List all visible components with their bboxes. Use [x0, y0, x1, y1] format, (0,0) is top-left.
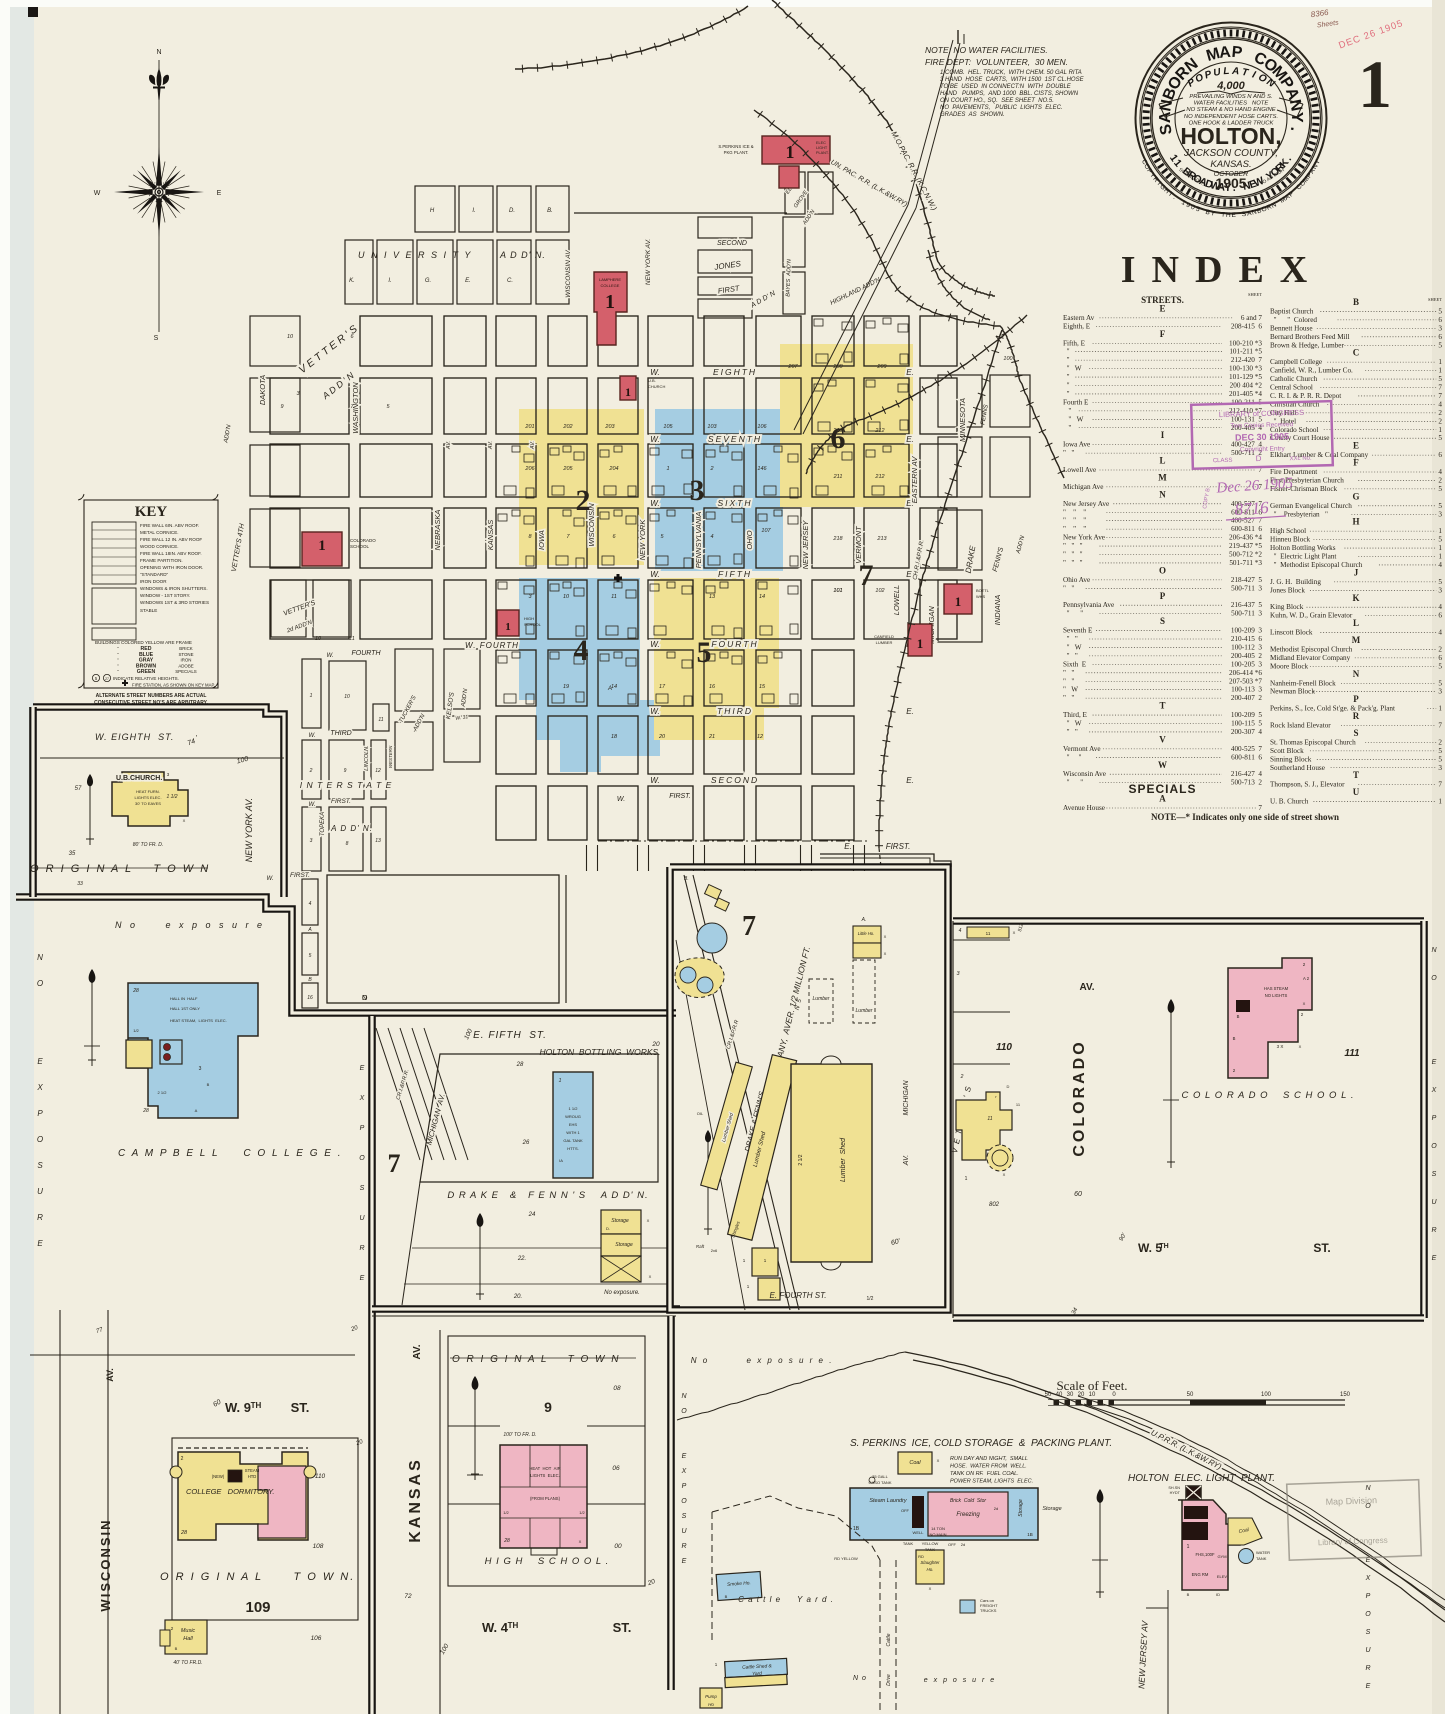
svg-text:N: N — [1159, 489, 1166, 499]
svg-text:5: 5 — [697, 636, 712, 669]
svg-text:COLORADO: COLORADO — [350, 538, 376, 543]
svg-text:Scale of Feet.: Scale of Feet. — [1056, 1378, 1127, 1393]
svg-text:GREEN: GREEN — [137, 669, 156, 675]
svg-text:212: 212 — [874, 428, 884, 434]
svg-text:57: 57 — [75, 786, 82, 792]
svg-text:218: 218 — [832, 536, 843, 542]
svg-text:8: 8 — [346, 841, 349, 847]
svg-text:FIRST.: FIRST. — [886, 842, 911, 851]
svg-text:R: R — [681, 1543, 686, 1550]
svg-text:RD: RD — [918, 1554, 924, 1559]
svg-text:WINDOWS 1ST & 3RD STORIES: WINDOWS 1ST & 3RD STORIES — [140, 600, 209, 605]
svg-text:150: 150 — [1340, 1392, 1351, 1398]
svg-text:6: 6 — [1438, 654, 1442, 662]
svg-text:INDEX: INDEX — [1121, 249, 1323, 291]
svg-text:5: 5 — [1438, 341, 1442, 349]
svg-text:MINNESOTA: MINNESOTA — [958, 398, 967, 442]
svg-text:" Electric Light Plant: " Electric Light Plant — [1270, 553, 1336, 561]
svg-text:A 2: A 2 — [1303, 976, 1310, 981]
svg-text:R: R — [1431, 1227, 1436, 1234]
svg-text:SCHOOL: SCHOOL — [350, 544, 370, 549]
svg-text:9: 9 — [344, 768, 347, 774]
svg-text:5: 5 — [1438, 536, 1442, 544]
svg-text:Catholic Church: Catholic Church — [1270, 375, 1318, 383]
svg-text:K: K — [1352, 593, 1359, 603]
svg-text:IOWA: IOWA — [537, 530, 546, 550]
svg-text:G: G — [1352, 491, 1359, 501]
svg-text:T: T — [1221, 212, 1226, 219]
svg-text:00: 00 — [614, 1543, 622, 1550]
svg-text:GYM: GYM — [1217, 1554, 1226, 1559]
svg-text:" W: " W — [1063, 643, 1082, 651]
svg-text:CANFIELD: CANFIELD — [874, 634, 894, 639]
svg-text:E: E — [1231, 212, 1236, 219]
svg-text:1 1/2: 1 1/2 — [166, 794, 177, 800]
svg-text:17: 17 — [659, 684, 666, 690]
svg-text:1 1/2: 1 1/2 — [569, 1106, 579, 1111]
svg-text:1: 1 — [625, 385, 631, 399]
svg-text:TANK: TANK — [903, 1541, 914, 1546]
svg-text:U. B. Church: U. B. Church — [1270, 798, 1309, 806]
svg-text:RUN DAY AND NIGHT, SMALL: RUN DAY AND NIGHT, SMALL — [950, 1456, 1028, 1462]
svg-text:O: O — [362, 995, 368, 1002]
svg-text:500-711 3: 500-711 3 — [1231, 610, 1262, 618]
svg-text:E: E — [682, 1453, 687, 1460]
svg-text:5: 5 — [1438, 755, 1442, 763]
svg-text:AV.: AV. — [530, 441, 536, 450]
svg-text:B: B — [725, 1594, 728, 1599]
svg-text:C. R. I. & P. R. R. Depot: C. R. I. & P. R. R. Depot — [1270, 392, 1341, 400]
svg-text:O: O — [359, 1155, 365, 1162]
svg-text:EHS: EHS — [569, 1122, 578, 1127]
svg-text:HYDT: HYDT — [1170, 1491, 1181, 1495]
svg-text:106: 106 — [757, 424, 767, 430]
svg-text:2: 2 — [576, 484, 591, 517]
svg-text:X: X — [1365, 1575, 1371, 1582]
svg-text:NOTE—* Indicates only one side: NOTE—* Indicates only one side of street… — [1151, 812, 1339, 822]
svg-text:" ": " " — [1063, 677, 1074, 685]
svg-text:D.: D. — [509, 208, 515, 214]
svg-text:100-205 3: 100-205 3 — [1231, 660, 1263, 668]
svg-text:S: S — [1432, 1171, 1437, 1178]
svg-text:1: 1 — [1438, 544, 1442, 552]
svg-text:SECOND: SECOND — [711, 775, 759, 785]
svg-text:3 X: 3 X — [1277, 1044, 1284, 1049]
svg-text:80' TO FR. D.: 80' TO FR. D. — [133, 842, 164, 848]
svg-text:X: X — [183, 818, 186, 823]
svg-text:LUMBER: LUMBER — [876, 640, 893, 645]
svg-text:TANK ON RF. FUEL COAL.: TANK ON RF. FUEL COAL. — [950, 1471, 1019, 1477]
svg-text:4: 4 — [1438, 400, 1442, 408]
svg-text:2: 2 — [181, 1456, 184, 1462]
svg-text:06: 06 — [612, 1465, 620, 1472]
svg-text:EIGHTH: EIGHTH — [713, 367, 757, 377]
svg-text:FIRE STATION, AS SHOWN ON KEY: FIRE STATION, AS SHOWN ON KEY MAP. — [132, 683, 215, 688]
svg-text:': ' — [196, 735, 197, 742]
svg-text:VERMONT: VERMONT — [854, 525, 863, 564]
svg-text:" W: " W — [1063, 686, 1078, 694]
svg-text:19: 19 — [563, 684, 569, 690]
svg-text:S: S — [682, 1513, 687, 1520]
svg-text:" ": " " — [1063, 669, 1074, 677]
svg-text:7: 7 — [1438, 781, 1442, 789]
svg-text:3 HAND HOSE CARTS, WITH 150: 3 HAND HOSE CARTS, WITH 1500 1ST CL.HOSE — [940, 77, 1085, 83]
svg-text:FIRE WALL 12 IN. ABV ROOF: FIRE WALL 12 IN. ABV ROOF — [140, 537, 202, 542]
svg-text:" ": " " — [1063, 652, 1078, 660]
svg-text:7: 7 — [1258, 804, 1262, 812]
svg-text:THIRD: THIRD — [717, 706, 753, 716]
svg-text:O: O — [1431, 1143, 1437, 1150]
svg-text:A: A — [1231, 66, 1240, 78]
svg-text:W. FOURTH: W. FOURTH — [465, 641, 519, 650]
svg-text:24: 24 — [528, 1212, 536, 1218]
svg-text:16: 16 — [307, 995, 313, 1001]
svg-text:U.B.CHURCH.: U.B.CHURCH. — [116, 775, 162, 782]
svg-text:1/2: 1/2 — [133, 1028, 139, 1033]
svg-text:"STANDARD": "STANDARD" — [140, 572, 169, 577]
svg-text:Hall: Hall — [183, 1636, 193, 1642]
svg-text:500-713 2: 500-713 2 — [1231, 779, 1263, 787]
svg-text:NO PAVEMENTS, PUBLIC LIGHT: NO PAVEMENTS, PUBLIC LIGHTS ELEC. — [940, 105, 1063, 111]
svg-text:Midland Elevator Company: Midland Elevator Company — [1270, 654, 1351, 662]
svg-text:T: T — [1353, 770, 1359, 780]
svg-text:4: 4 — [959, 928, 962, 934]
svg-text:Moore Block: Moore Block — [1270, 662, 1309, 670]
svg-text:Newman Block: Newman Block — [1270, 688, 1315, 696]
svg-text:28: 28 — [142, 1108, 149, 1114]
svg-text:35: 35 — [69, 851, 76, 857]
svg-text:HOLTON BOTTLING WORKS.: HOLTON BOTTLING WORKS. — [539, 1047, 660, 1057]
svg-text:N o: N o — [853, 1675, 867, 1682]
svg-text:50: 50 — [1187, 1392, 1194, 1398]
svg-text:AV.: AV. — [105, 1368, 115, 1382]
svg-text:WELL: WELL — [913, 1530, 925, 1535]
svg-text:30' TO EAVES: 30' TO EAVES — [135, 801, 161, 806]
svg-text:211: 211 — [833, 474, 843, 480]
svg-text:NO MAIN: NO MAIN — [929, 1532, 946, 1537]
svg-text:3: 3 — [199, 1066, 202, 1072]
svg-text:M: M — [1352, 635, 1361, 645]
svg-text:GRADES AS SHOWN.: GRADES AS SHOWN. — [940, 112, 1005, 118]
svg-text:O: O — [1365, 1611, 1371, 1618]
svg-text:Eighth, E: Eighth, E — [1063, 322, 1091, 330]
svg-text:10: 10 — [344, 694, 350, 700]
svg-text:206-414 *6: 206-414 *6 — [1229, 669, 1262, 677]
svg-text:H: H — [430, 208, 435, 214]
svg-text:Drive: Drive — [886, 1674, 892, 1686]
svg-text:E: E — [1366, 1683, 1371, 1690]
svg-text:WATER FACILITIES NOTE: WATER FACILITIES NOTE — [1194, 101, 1269, 107]
svg-text:C O L O R A D O S C H O O L: C O L O R A D O S C H O O L . — [1182, 1090, 1355, 1101]
svg-text:O: O — [1159, 565, 1166, 575]
svg-text:PREVAILING WINDS N AND S.: PREVAILING WINDS N AND S. — [1189, 94, 1272, 100]
svg-text:B: B — [1353, 297, 1359, 307]
svg-text:C a t t l e Y a r d .: C a t t l e Y a r d . — [738, 1595, 834, 1604]
svg-text:E.: E. — [844, 842, 852, 851]
svg-text:O: O — [681, 1408, 687, 1415]
svg-text:5: 5 — [1438, 662, 1442, 670]
svg-text:100-210 *3: 100-210 *3 — [1229, 339, 1262, 347]
svg-text:E: E — [360, 1275, 365, 1282]
svg-text:11: 11 — [986, 931, 991, 936]
svg-text:201: 201 — [524, 424, 534, 430]
svg-text:X: X — [647, 1218, 650, 1223]
svg-text:4: 4 — [1438, 561, 1442, 569]
svg-text:12: 12 — [375, 768, 381, 774]
svg-text:" " ": " " " — [1063, 517, 1086, 525]
svg-text:" ": " " — [1063, 779, 1083, 787]
svg-text:12: 12 — [757, 734, 763, 740]
svg-text:CLASS: CLASS — [1213, 458, 1233, 465]
svg-text:O R I G I N A L T O W N: O R I G I N A L T O W N — [30, 863, 210, 875]
svg-text:W.: W. — [650, 570, 659, 579]
svg-text:7: 7 — [742, 911, 756, 942]
svg-text:T: T — [1159, 701, 1165, 711]
svg-text:100-209 5: 100-209 5 — [1231, 711, 1263, 719]
svg-text:B: B — [175, 1646, 178, 1651]
svg-text:OHIO: OHIO — [745, 530, 754, 549]
svg-text:6: 6 — [1438, 316, 1442, 324]
svg-text:HEAT STEAM, LIGHTS ELEC.: HEAT STEAM, LIGHTS ELEC. — [170, 1018, 227, 1023]
svg-text:New York Ave: New York Ave — [1063, 534, 1105, 542]
svg-text:HTTS.: HTTS. — [567, 1146, 579, 1151]
svg-text:P: P — [682, 1483, 687, 1490]
svg-text:10: 10 — [1089, 1392, 1096, 1398]
svg-text:Fifth, E: Fifth, E — [1063, 339, 1086, 347]
svg-text:FIRST.: FIRST. — [669, 793, 691, 800]
svg-text:E: E — [1432, 1255, 1437, 1262]
svg-text:5: 5 — [1438, 307, 1442, 315]
svg-text:e x p o s u r e: e x p o s u r e — [924, 1677, 996, 1684]
svg-text:XXc No.: XXc No. — [1290, 456, 1312, 463]
svg-text:FIRST.: FIRST. — [290, 872, 310, 879]
svg-text:P: P — [1353, 694, 1359, 704]
svg-text:2: 2 — [1438, 738, 1442, 746]
svg-text:72: 72 — [404, 1593, 412, 1600]
svg-text:2: 2 — [309, 768, 313, 774]
svg-text:DAKOTA: DAKOTA — [258, 375, 267, 405]
svg-text:W.: W. — [650, 435, 659, 444]
svg-text:E. FIFTH ST.: E. FIFTH ST. — [473, 1030, 547, 1041]
svg-text:SEVENTH: SEVENTH — [708, 434, 762, 444]
svg-text:CHURCH: CHURCH — [648, 384, 665, 389]
svg-text:W.: W. — [650, 640, 659, 649]
svg-text:OPENING WITH IRON DOOR.: OPENING WITH IRON DOOR. — [140, 565, 203, 570]
svg-text:1: 1 — [1438, 705, 1442, 713]
svg-text:10: 10 — [287, 334, 294, 340]
svg-text:AV.: AV. — [903, 1155, 910, 1166]
svg-text:3: 3 — [1438, 510, 1442, 518]
svg-text:28: 28 — [503, 1538, 510, 1544]
svg-text:SHEET: SHEET — [1248, 292, 1262, 297]
svg-text:5: 5 — [309, 953, 312, 959]
svg-text:" " ": " " " — [1063, 542, 1083, 550]
svg-text:" ": " " — [1063, 635, 1078, 643]
svg-text:High School: High School — [1270, 527, 1306, 535]
svg-text:2d: 2d — [961, 1542, 965, 1547]
svg-text:C A M P B E L L C O L L E: C A M P B E L L C O L L E G E . — [118, 1148, 343, 1159]
svg-text:4: 4 — [1438, 603, 1442, 611]
svg-text:" W: " W — [1063, 720, 1082, 728]
svg-text:COLLEGE: COLLEGE — [601, 283, 620, 288]
svg-text:Bennett House: Bennett House — [1270, 324, 1313, 332]
svg-text:X: X — [884, 951, 887, 956]
svg-text:Thompson, S. J., Elevator: Thompson, S. J., Elevator — [1270, 781, 1345, 789]
svg-text:" " ": " " " — [1063, 508, 1086, 516]
svg-text:3: 3 — [1438, 688, 1442, 696]
svg-text:F: F — [1160, 329, 1166, 339]
svg-text:RD YELLOW: RD YELLOW — [834, 1556, 858, 1561]
svg-text:O: O — [1431, 975, 1437, 982]
svg-text:" W: " W — [1063, 415, 1084, 423]
svg-text:INDICATE RELATIVE HEIGHTS.: INDICATE RELATIVE HEIGHTS. — [113, 676, 179, 681]
svg-text:P: P — [1231, 44, 1244, 62]
svg-text:4,000: 4,000 — [1216, 80, 1245, 92]
svg-text:N o e x p o s u r e: N o e x p o s u r e — [115, 920, 265, 930]
svg-text:JACKSON COUNTY,: JACKSON COUNTY, — [1183, 148, 1278, 159]
svg-text:106: 106 — [311, 1635, 322, 1642]
svg-text:26: 26 — [522, 1140, 530, 1146]
svg-text:5: 5 — [1438, 434, 1442, 442]
svg-text:(NEW): (NEW) — [212, 1474, 225, 1479]
svg-text:X: X — [359, 1095, 365, 1102]
svg-text:A.: A. — [861, 917, 867, 923]
svg-text:40' TO FR.D.: 40' TO FR.D. — [173, 1660, 202, 1666]
svg-text:Linscott Block: Linscott Block — [1270, 629, 1313, 637]
svg-text:6: 6 — [1438, 451, 1442, 459]
svg-text:1B: 1B — [1027, 1532, 1033, 1537]
svg-text:WINDOW - 1ST STORY.: WINDOW - 1ST STORY. — [140, 593, 190, 598]
svg-text:O: O — [681, 1498, 687, 1505]
svg-text:08: 08 — [613, 1385, 621, 1392]
svg-text:W.: W. — [650, 776, 659, 785]
svg-text:E.: E. — [906, 776, 914, 785]
svg-text:OFF: OFF — [948, 1542, 957, 1547]
svg-text:AV.: AV. — [1079, 982, 1094, 993]
svg-text:NEW YORK AV.: NEW YORK AV. — [244, 798, 254, 862]
svg-text:New Jersey Ave: New Jersey Ave — [1063, 500, 1109, 508]
svg-text:BRICK: BRICK — [179, 646, 192, 651]
svg-text:10: 10 — [563, 594, 570, 600]
svg-text:6: 6 — [831, 422, 846, 455]
svg-text:NO STEAM & NO HAND ENGINE: NO STEAM & NO HAND ENGINE — [1186, 107, 1275, 113]
svg-text:212: 212 — [874, 474, 884, 480]
svg-text:e x p o s u r e .: e x p o s u r e . — [747, 1356, 834, 1365]
svg-text:X: X — [884, 934, 887, 939]
svg-text:STABLE: STABLE — [140, 608, 157, 613]
svg-text:Vermont Ave: Vermont Ave — [1063, 745, 1101, 753]
svg-text:11: 11 — [378, 717, 383, 723]
svg-text:10: 10 — [315, 636, 322, 642]
svg-text:O R I G I N A L T O W N: O R I G I N A L T O W N — [452, 1354, 621, 1365]
svg-text:": " — [1063, 348, 1070, 356]
svg-text:Copyright Entry: Copyright Entry — [1240, 445, 1286, 453]
svg-text:1: 1 — [666, 466, 669, 472]
svg-text:TOPEKA: TOPEKA — [320, 812, 326, 836]
svg-text:KEY: KEY — [135, 504, 168, 520]
svg-text:W.: W. — [650, 707, 659, 716]
svg-text:Seventh E: Seventh E — [1063, 627, 1093, 635]
svg-text:NOTE: NO WATER FACILITIES.: NOTE: NO WATER FACILITIES. — [925, 45, 1048, 55]
svg-text:1: 1 — [310, 693, 313, 699]
svg-text:1: 1 — [1187, 1544, 1190, 1550]
svg-text:Freezing: Freezing — [956, 1512, 980, 1518]
svg-text:": " — [1063, 356, 1070, 364]
svg-text:1: 1 — [955, 594, 962, 609]
svg-text:20.: 20. — [513, 1294, 522, 1300]
svg-text:206-436 *4: 206-436 *4 — [1229, 534, 1262, 542]
svg-text:14 TON: 14 TON — [931, 1526, 945, 1531]
svg-text:N: N — [156, 49, 161, 56]
svg-text:SECOND: SECOND — [717, 240, 747, 247]
svg-text:B: B — [1187, 1592, 1190, 1597]
svg-text:FOURTH: FOURTH — [711, 639, 758, 649]
svg-text:COLLEGE DORMITORY.: COLLEGE DORMITORY. — [186, 1487, 275, 1496]
svg-text:SPECIALS: SPECIALS — [175, 669, 197, 674]
svg-text:" ": " " — [1063, 610, 1083, 618]
svg-text:POWER STEAM, LIGHTS ELEC.: POWER STEAM, LIGHTS ELEC. — [950, 1479, 1033, 1485]
svg-text:HIGH: HIGH — [524, 616, 534, 621]
svg-text:ELEV: ELEV — [1217, 1574, 1228, 1579]
svg-text:E: E — [37, 1057, 43, 1066]
svg-text:U: U — [1353, 787, 1360, 797]
svg-text:" W: " W — [1063, 365, 1082, 373]
svg-text:ST.: ST. — [613, 1620, 632, 1635]
svg-text:E: E — [37, 1239, 43, 1248]
svg-text:L: L — [1223, 66, 1230, 77]
svg-text:28: 28 — [132, 988, 139, 994]
svg-text:Slaughter: Slaughter — [920, 1560, 940, 1565]
svg-text:Lumber: Lumber — [813, 996, 830, 1002]
svg-text:V: V — [1159, 734, 1166, 744]
svg-text:A: A — [195, 1108, 198, 1113]
svg-text:" ": " " — [1063, 753, 1082, 761]
svg-text:X: X — [937, 1458, 940, 1463]
svg-text:NEW YORK: NEW YORK — [638, 519, 647, 561]
svg-text:110: 110 — [315, 1473, 326, 1480]
svg-text:BUILDINGS COLORED YELLOW ARE F: BUILDINGS COLORED YELLOW ARE FRAME — [95, 640, 192, 645]
svg-text:Lumber Shed: Lumber Shed — [840, 1137, 847, 1182]
svg-text:100-130 *3: 100-130 *3 — [1229, 365, 1262, 373]
svg-text:U N I V E R S I T Y: U N I V E R S I T Y — [358, 250, 472, 260]
svg-text:LIGHTS ELEC.: LIGHTS ELEC. — [530, 1473, 560, 1478]
svg-text:W. EIGHTH ST.: W. EIGHTH ST. — [95, 732, 174, 742]
svg-text:PLANT.: PLANT. — [816, 151, 829, 155]
svg-text:E: E — [682, 1558, 687, 1565]
svg-text:Sixth E: Sixth E — [1063, 660, 1087, 668]
svg-text:" ": " " — [1063, 584, 1074, 592]
svg-text:2: 2 — [960, 1074, 964, 1080]
svg-text:FIFTH: FIFTH — [718, 569, 752, 579]
svg-text:101-129 *5: 101-129 *5 — [1229, 373, 1262, 381]
svg-text:Storage: Storage — [615, 1242, 633, 1248]
svg-text:No exposure.: No exposure. — [604, 1290, 640, 1296]
svg-text:7: 7 — [388, 1149, 401, 1178]
svg-text:LINCOLN.: LINCOLN. — [364, 745, 370, 770]
svg-text:German Evangelical Church: German Evangelical Church — [1270, 502, 1352, 510]
svg-text:1: 1 — [1358, 46, 1392, 122]
svg-text:STEAM: STEAM — [245, 1468, 260, 1473]
svg-text:FIRST.: FIRST. — [331, 798, 351, 805]
svg-text:C: C — [1353, 348, 1360, 358]
svg-text:HOLTON,: HOLTON, — [1180, 123, 1281, 149]
svg-text:E: E — [360, 1065, 365, 1072]
svg-text:4: 4 — [309, 901, 312, 907]
svg-text:Ohio Ave: Ohio Ave — [1063, 576, 1090, 584]
svg-text:Coal: Coal — [909, 1460, 921, 1466]
svg-text:LAMPHERE: LAMPHERE — [599, 277, 621, 282]
svg-text:Central School: Central School — [1270, 384, 1313, 392]
